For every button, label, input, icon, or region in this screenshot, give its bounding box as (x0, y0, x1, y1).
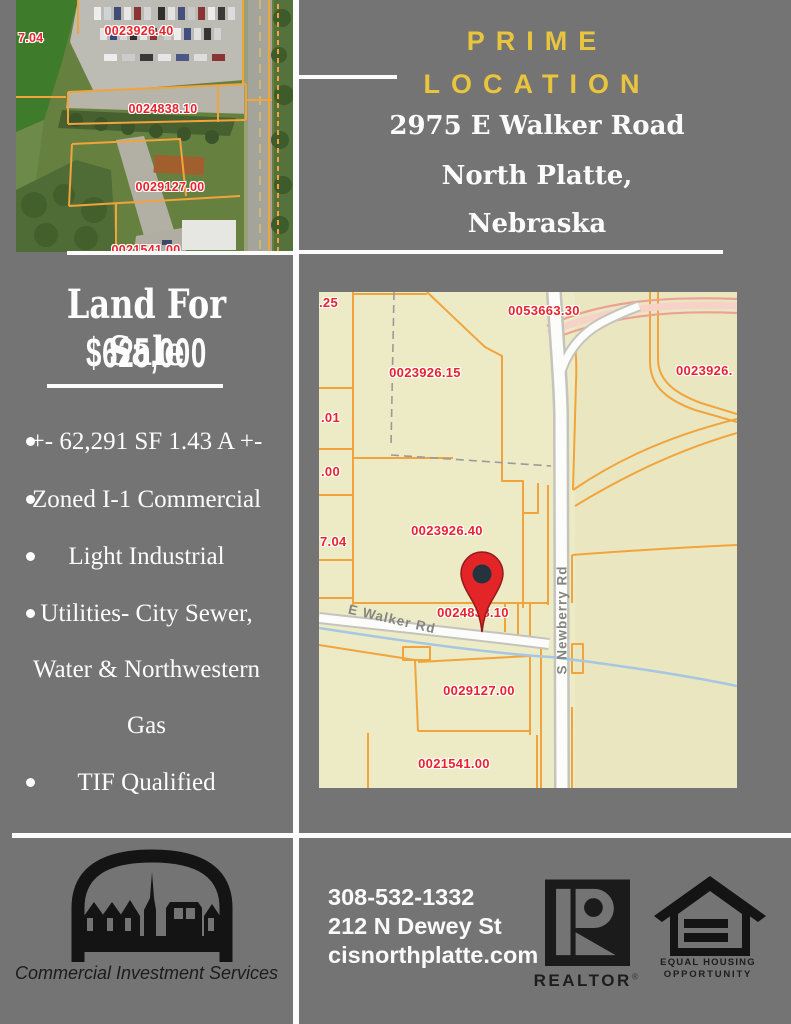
vertical-divider (293, 0, 299, 1024)
bullet-text: Utilities- City Sewer, (40, 600, 252, 627)
listing-bullet: Zoned I-1 Commercial (0, 486, 293, 514)
listing-price: $625,000 (50, 329, 243, 377)
aerial-parcel-label: 0023926.40 (104, 24, 173, 38)
parcel-label: 0029127.00 (443, 684, 515, 698)
street-address: 212 N Dewey St (328, 913, 502, 940)
parcel-label: .25 (319, 296, 338, 310)
cis-logo-caption: Commercial Investment Services (0, 963, 293, 984)
aerial-parcel-label: 0024838.10 (128, 102, 197, 116)
parcel-label: .00 (321, 465, 340, 479)
location-pin-icon (459, 550, 505, 636)
listing-bullet: TIF Qualified (0, 769, 293, 797)
parcel-label: 0023926.40 (411, 524, 483, 538)
bullet-text: Light Industrial (68, 543, 224, 570)
plat-map-graphic (319, 292, 737, 788)
plat-map: .25 0053663.30 0023926.15 0023926. .01 .… (319, 292, 737, 788)
cis-logo (66, 848, 238, 964)
aerial-photo: 0023926.40 0024838.10 0029127.00 7.04 00… (16, 0, 293, 252)
eho-label-line1: EQUAL HOUSING (648, 957, 768, 968)
website-url[interactable]: cisnorthplatte.com (328, 942, 538, 969)
listing-bullet: Utilities- City Sewer, (0, 600, 293, 628)
price-underline (47, 384, 223, 388)
bullet-dot (26, 495, 35, 504)
realtor-label: REALTOR® (532, 971, 640, 991)
bullet-text: Zoned I-1 Commercial (32, 486, 261, 513)
aerial-parcel-label: 7.04 (18, 31, 44, 45)
aerial-parcel-label: 0029127.00 (135, 180, 204, 194)
eho-label-line2: OPPORTUNITY (648, 969, 768, 980)
parcel-label: 0023926.15 (389, 366, 461, 380)
footer-rule (12, 833, 791, 838)
realtor-label-text: REALTOR (534, 971, 632, 990)
parcel-label: 0023926. (676, 364, 733, 378)
listing-bullet: Light Industrial (0, 543, 293, 571)
bullet-text: Water & Northwestern (33, 656, 260, 683)
rule-under-aerial (67, 251, 293, 255)
bullet-dot (26, 778, 35, 787)
parcel-label: 7.04 (320, 535, 347, 549)
listing-bullet: +- 62,291 SF 1.43 A +- (0, 428, 293, 456)
rule-under-address (299, 250, 723, 254)
listing-bullet: Water & Northwestern (0, 656, 293, 684)
bullet-text: Gas (127, 712, 166, 739)
parcel-label: .01 (321, 411, 340, 425)
bullet-text: TIF Qualified (77, 769, 215, 796)
headline-word-2: LOCATION (299, 69, 775, 100)
flyer-page: 0023926.40 0024838.10 0029127.00 7.04 00… (0, 0, 791, 1024)
realtor-logo (545, 878, 630, 966)
registered-mark: ® (632, 971, 639, 981)
address-line-2: North Platte, (299, 161, 775, 191)
listing-bullet: Gas (0, 712, 293, 740)
parcel-label: 0053663.30 (508, 304, 580, 318)
road-label-newberry: S Newberry Rd (555, 565, 570, 674)
bullet-dot (26, 609, 35, 618)
address-line-3: Nebraska (299, 209, 775, 239)
headline-word-1: PRIME (299, 26, 775, 57)
parcel-label: 0021541.00 (418, 757, 490, 771)
address-line-1: 2975 E Walker Road (299, 111, 775, 141)
phone-number: 308-532-1332 (328, 884, 474, 911)
equal-housing-logo (654, 876, 766, 956)
bullet-dot (26, 552, 35, 561)
bullet-dot (26, 437, 35, 446)
bullet-text: +- 62,291 SF 1.43 A +- (31, 428, 263, 455)
